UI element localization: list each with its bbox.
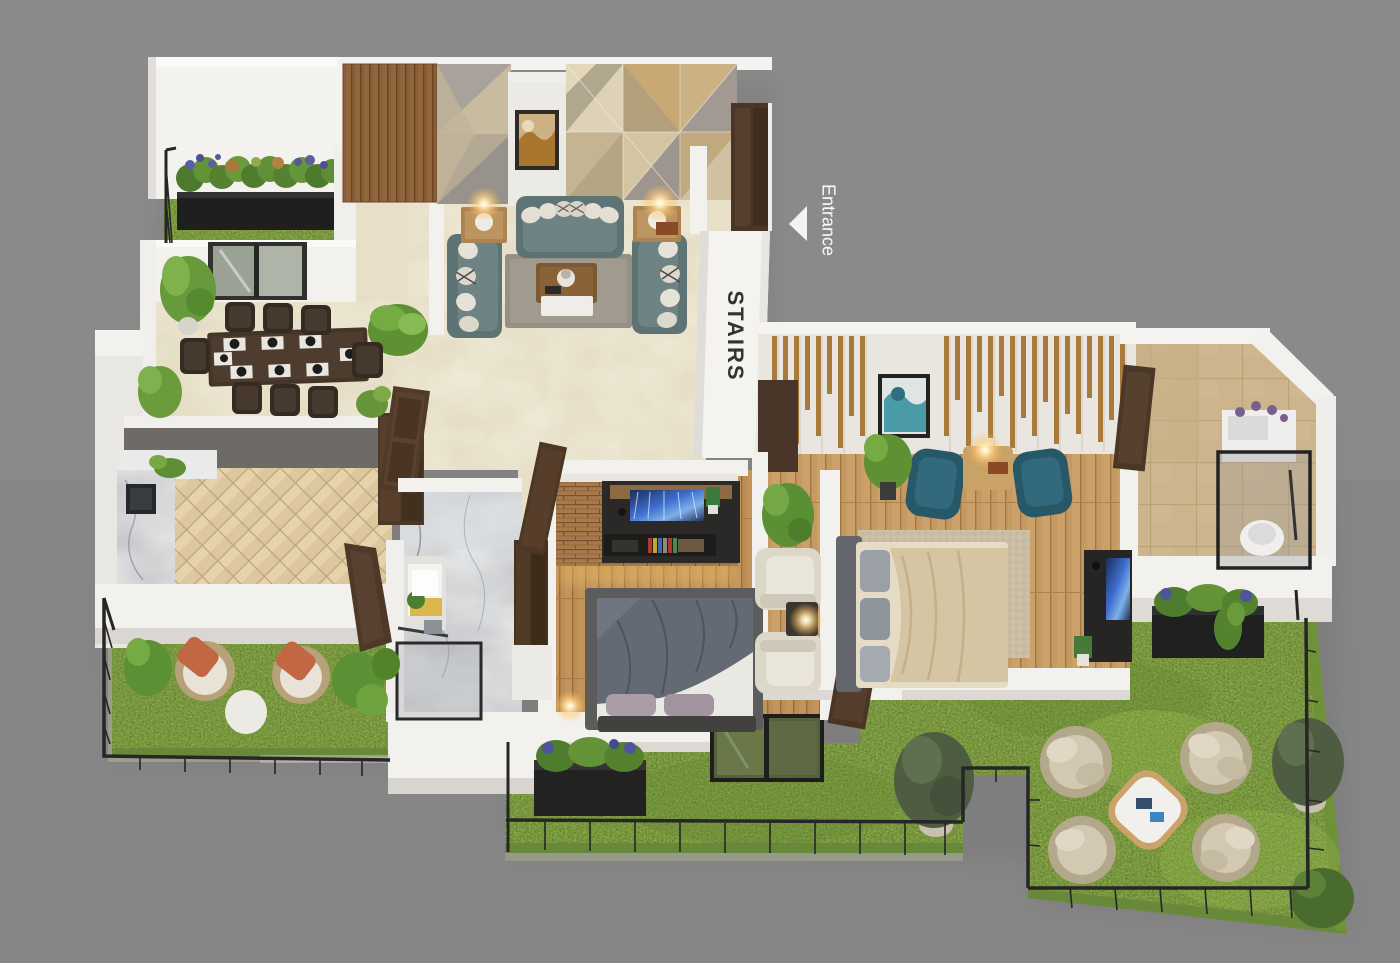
svg-text:STAIRS: STAIRS (723, 290, 748, 381)
svg-text:Entrance: Entrance (818, 184, 838, 256)
